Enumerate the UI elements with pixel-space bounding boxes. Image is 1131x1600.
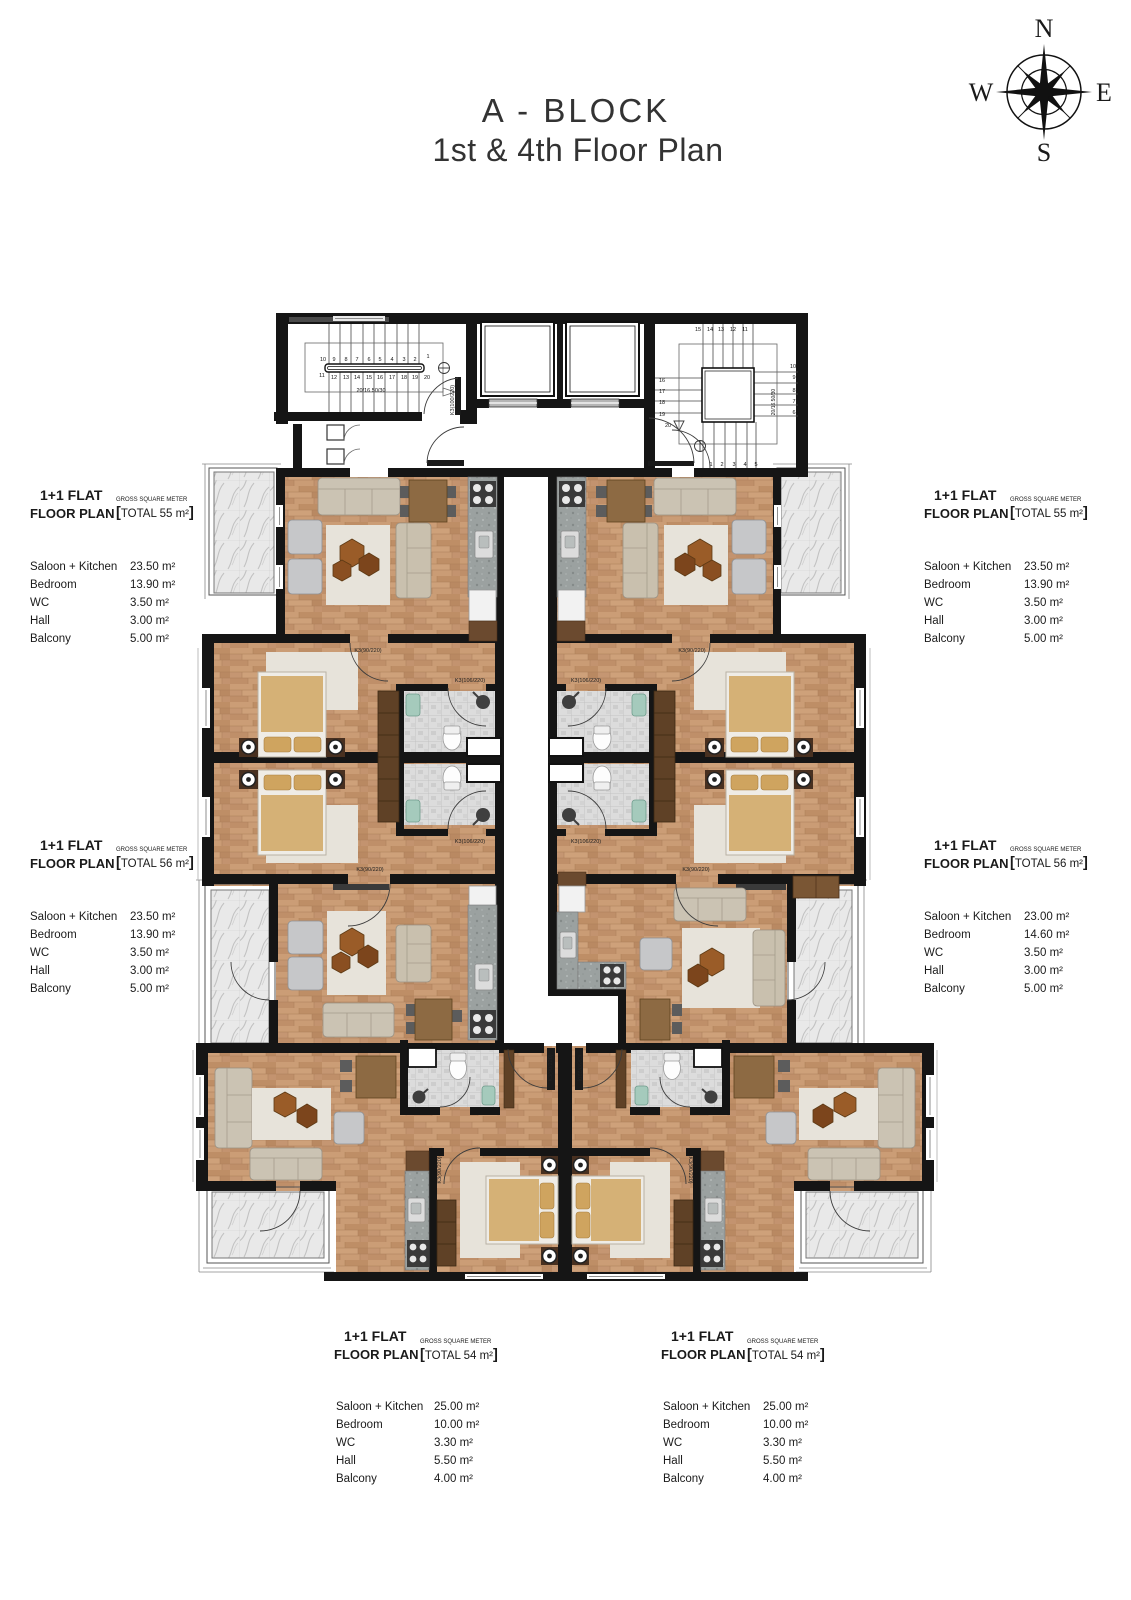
svg-text:E: E — [1096, 78, 1112, 107]
svg-text:15: 15 — [695, 327, 701, 333]
svg-text:5.00 m²: 5.00 m² — [130, 633, 169, 645]
svg-text:GROSS SQUARE METER: GROSS SQUARE METER — [1010, 847, 1082, 853]
svg-text:8: 8 — [792, 388, 795, 394]
svg-text:11: 11 — [742, 327, 748, 333]
svg-text:Balcony: Balcony — [663, 1473, 704, 1485]
svg-text:Balcony: Balcony — [924, 633, 965, 645]
svg-text:10: 10 — [790, 364, 796, 370]
svg-text:W: W — [969, 78, 994, 107]
svg-text:9: 9 — [792, 375, 795, 381]
svg-text:Saloon + Kitchen: Saloon + Kitchen — [336, 1401, 423, 1413]
svg-text:3.50 m²: 3.50 m² — [1024, 947, 1063, 959]
svg-text:4.00 m²: 4.00 m² — [434, 1473, 473, 1485]
svg-text:17: 17 — [659, 389, 665, 395]
svg-text:5: 5 — [754, 462, 757, 468]
svg-text:FLOOR PLAN: FLOOR PLAN — [661, 1347, 746, 1362]
svg-text:WC: WC — [30, 947, 49, 959]
svg-text:Bedroom: Bedroom — [924, 929, 971, 941]
svg-text:23.50 m²: 23.50 m² — [130, 911, 176, 923]
svg-text:Bedroom: Bedroom — [336, 1419, 383, 1431]
svg-text:Balcony: Balcony — [30, 983, 71, 995]
svg-text:14: 14 — [354, 375, 360, 381]
svg-text:Saloon + Kitchen: Saloon + Kitchen — [30, 561, 117, 573]
svg-text:Bedroom: Bedroom — [924, 579, 971, 591]
svg-text:8: 8 — [344, 357, 347, 363]
svg-text:25.00 m²: 25.00 m² — [763, 1401, 809, 1413]
svg-text:Balcony: Balcony — [924, 983, 965, 995]
svg-text:S: S — [1037, 138, 1051, 167]
svg-text:Bedroom: Bedroom — [30, 929, 77, 941]
svg-text:1+1 FLAT: 1+1 FLAT — [671, 1328, 734, 1344]
svg-text:2: 2 — [413, 357, 416, 363]
svg-text:3.00 m²: 3.00 m² — [1024, 615, 1063, 627]
svg-text:9: 9 — [332, 357, 335, 363]
svg-text:5.00 m²: 5.00 m² — [1024, 633, 1063, 645]
svg-text:5.50 m²: 5.50 m² — [434, 1455, 473, 1467]
svg-text:18: 18 — [401, 375, 407, 381]
svg-text:FLOOR PLAN: FLOOR PLAN — [30, 856, 115, 871]
svg-text:Hall: Hall — [924, 965, 944, 977]
svg-text:23.50 m²: 23.50 m² — [130, 561, 176, 573]
svg-text:5.00 m²: 5.00 m² — [130, 983, 169, 995]
svg-text:[TOTAL 55 m²]: [TOTAL 55 m²] — [116, 505, 194, 521]
svg-text:GROSS SQUARE METER: GROSS SQUARE METER — [420, 1339, 492, 1345]
svg-text:4: 4 — [743, 462, 746, 468]
svg-text:12: 12 — [331, 375, 337, 381]
svg-text:K3(90/220): K3(90/220) — [576, 1054, 582, 1081]
svg-text:20/16.50/30: 20/16.50/30 — [771, 389, 777, 416]
svg-text:K3(90/220): K3(90/220) — [356, 867, 383, 873]
svg-text:K3(106/220): K3(106/220) — [571, 839, 601, 845]
svg-text:3.00 m²: 3.00 m² — [1024, 965, 1063, 977]
svg-text:19: 19 — [412, 375, 418, 381]
svg-text:Hall: Hall — [663, 1455, 683, 1467]
svg-text:3.50 m²: 3.50 m² — [130, 947, 169, 959]
svg-text:WC: WC — [924, 947, 943, 959]
svg-text:16: 16 — [377, 375, 383, 381]
svg-text:5: 5 — [378, 357, 381, 363]
svg-text:K3(106/220): K3(106/220) — [455, 678, 485, 684]
svg-text:3: 3 — [732, 462, 735, 468]
svg-text:1+1 FLAT: 1+1 FLAT — [40, 837, 103, 853]
svg-text:3.50 m²: 3.50 m² — [130, 597, 169, 609]
svg-text:20/16.50/30: 20/16.50/30 — [356, 388, 385, 394]
svg-text:Hall: Hall — [336, 1455, 356, 1467]
svg-text:23.00 m²: 23.00 m² — [1024, 911, 1070, 923]
svg-text:WC: WC — [663, 1437, 682, 1449]
svg-text:13: 13 — [718, 327, 724, 333]
svg-text:K3(90/220): K3(90/220) — [678, 648, 705, 654]
svg-text:3.30 m²: 3.30 m² — [434, 1437, 473, 1449]
svg-text:5.50 m²: 5.50 m² — [763, 1455, 802, 1467]
svg-text:Hall: Hall — [30, 615, 50, 627]
svg-text:4.00 m²: 4.00 m² — [763, 1473, 802, 1485]
svg-text:10.00 m²: 10.00 m² — [434, 1419, 480, 1431]
svg-text:[TOTAL 56 m²]: [TOTAL 56 m²] — [1010, 855, 1088, 871]
svg-text:K3(106/220): K3(106/220) — [571, 678, 601, 684]
svg-text:3: 3 — [402, 357, 405, 363]
svg-text:Balcony: Balcony — [30, 633, 71, 645]
svg-text:K3(100/220): K3(100/220) — [450, 385, 456, 415]
svg-text:1st & 4th Floor Plan: 1st & 4th Floor Plan — [432, 132, 723, 168]
svg-text:10: 10 — [320, 357, 326, 363]
svg-text:19: 19 — [659, 412, 665, 418]
svg-text:5.00 m²: 5.00 m² — [1024, 983, 1063, 995]
svg-text:K3(90/220): K3(90/220) — [682, 867, 709, 873]
svg-text:16: 16 — [659, 378, 665, 384]
svg-text:Saloon + Kitchen: Saloon + Kitchen — [663, 1401, 750, 1413]
svg-text:A - BLOCK: A - BLOCK — [482, 92, 670, 129]
svg-text:7: 7 — [355, 357, 358, 363]
svg-text:3.00 m²: 3.00 m² — [130, 615, 169, 627]
svg-text:13.90 m²: 13.90 m² — [1024, 579, 1070, 591]
svg-text:GROSS SQUARE METER: GROSS SQUARE METER — [116, 847, 188, 853]
svg-text:13.90 m²: 13.90 m² — [130, 929, 176, 941]
svg-text:Balcony: Balcony — [336, 1473, 377, 1485]
svg-text:1: 1 — [426, 354, 429, 360]
svg-text:3.30 m²: 3.30 m² — [763, 1437, 802, 1449]
svg-text:Saloon + Kitchen: Saloon + Kitchen — [30, 911, 117, 923]
svg-text:K3(90/220): K3(90/220) — [687, 1156, 693, 1183]
svg-text:11: 11 — [319, 373, 325, 379]
svg-text:1+1 FLAT: 1+1 FLAT — [344, 1328, 407, 1344]
svg-text:7: 7 — [792, 399, 795, 405]
svg-text:WC: WC — [30, 597, 49, 609]
svg-text:Hall: Hall — [30, 965, 50, 977]
svg-text:K3(90/220): K3(90/220) — [437, 1156, 443, 1183]
svg-text:WC: WC — [336, 1437, 355, 1449]
svg-text:WC: WC — [924, 597, 943, 609]
svg-text:GROSS SQUARE METER: GROSS SQUARE METER — [1010, 497, 1082, 503]
svg-text:N: N — [1035, 14, 1054, 43]
svg-text:[TOTAL 56 m²]: [TOTAL 56 m²] — [116, 855, 194, 871]
svg-text:Hall: Hall — [924, 615, 944, 627]
svg-text:1+1 FLAT: 1+1 FLAT — [934, 837, 997, 853]
svg-text:1+1 FLAT: 1+1 FLAT — [934, 487, 997, 503]
svg-text:3.50 m²: 3.50 m² — [1024, 597, 1063, 609]
svg-text:13: 13 — [343, 375, 349, 381]
svg-text:10.00 m²: 10.00 m² — [763, 1419, 809, 1431]
svg-text:K3(90/220): K3(90/220) — [354, 648, 381, 654]
svg-text:FLOOR PLAN: FLOOR PLAN — [30, 506, 115, 521]
svg-text:K3(106/220): K3(106/220) — [455, 839, 485, 845]
svg-text:2: 2 — [720, 462, 723, 468]
svg-text:20: 20 — [424, 375, 430, 381]
svg-text:1+1 FLAT: 1+1 FLAT — [40, 487, 103, 503]
svg-text:6: 6 — [367, 357, 370, 363]
svg-text:25.00 m²: 25.00 m² — [434, 1401, 480, 1413]
svg-text:14.60 m²: 14.60 m² — [1024, 929, 1070, 941]
svg-text:GROSS SQUARE METER: GROSS SQUARE METER — [747, 1339, 819, 1345]
svg-text:6: 6 — [792, 410, 795, 416]
svg-text:[TOTAL 55 m²]: [TOTAL 55 m²] — [1010, 505, 1088, 521]
svg-text:FLOOR PLAN: FLOOR PLAN — [334, 1347, 419, 1362]
svg-text:15: 15 — [366, 375, 372, 381]
svg-text:4: 4 — [390, 357, 393, 363]
svg-text:17: 17 — [389, 375, 395, 381]
svg-text:23.50 m²: 23.50 m² — [1024, 561, 1070, 573]
svg-text:[TOTAL 54 m²]: [TOTAL 54 m²] — [420, 1347, 498, 1363]
svg-text:FLOOR PLAN: FLOOR PLAN — [924, 856, 1009, 871]
svg-text:Saloon + Kitchen: Saloon + Kitchen — [924, 911, 1011, 923]
svg-text:13.90 m²: 13.90 m² — [130, 579, 176, 591]
svg-text:FLOOR PLAN: FLOOR PLAN — [924, 506, 1009, 521]
svg-text:GROSS SQUARE METER: GROSS SQUARE METER — [116, 497, 188, 503]
svg-text:Bedroom: Bedroom — [663, 1419, 710, 1431]
svg-text:12: 12 — [730, 327, 736, 333]
svg-text:[TOTAL 54 m²]: [TOTAL 54 m²] — [747, 1347, 825, 1363]
svg-text:Bedroom: Bedroom — [30, 579, 77, 591]
svg-text:K3(90/220): K3(90/220) — [548, 1054, 554, 1081]
svg-text:18: 18 — [659, 400, 665, 406]
svg-text:14: 14 — [707, 327, 713, 333]
svg-text:Saloon + Kitchen: Saloon + Kitchen — [924, 561, 1011, 573]
svg-text:3.00 m²: 3.00 m² — [130, 965, 169, 977]
